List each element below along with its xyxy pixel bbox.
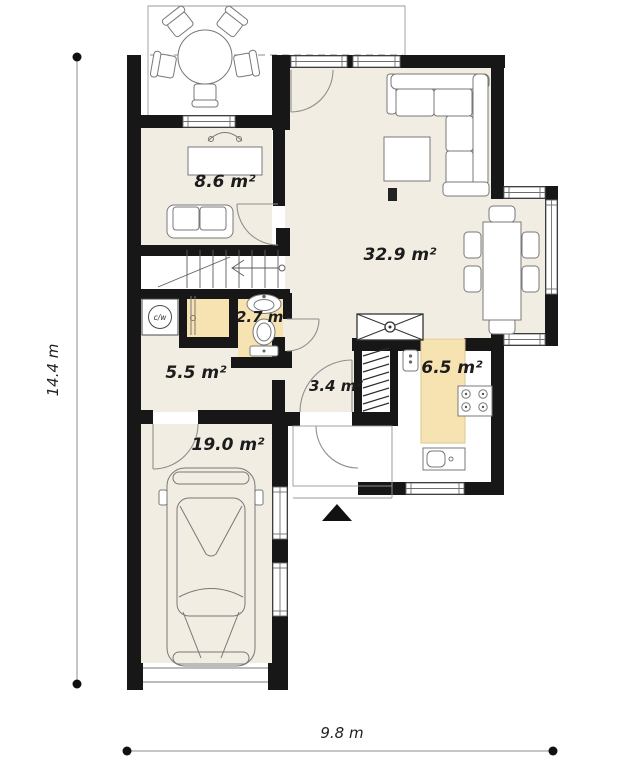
dimension-vertical: 14.4 m [44, 53, 82, 689]
room-label-garage: 19.0 m² [191, 435, 265, 455]
floor-plan-canvas: c/w [0, 0, 625, 760]
wardrobe-floor [187, 293, 229, 337]
garage-gate [143, 668, 268, 682]
dimension-label-horizontal: 9.8 m [320, 724, 363, 742]
dining-chair [489, 206, 515, 222]
wall-pantry-right [390, 346, 398, 416]
window-garage-2 [273, 563, 287, 616]
wall-exterior-right-upper [491, 55, 504, 199]
wall-wardrobe-left [179, 293, 187, 339]
room-label-hall: 5.5 m² [165, 363, 227, 383]
car-mirror [255, 490, 263, 505]
window-living-top-2 [353, 56, 400, 67]
dining-table [483, 222, 521, 320]
wall-wardrobe-bottom [179, 337, 238, 348]
dining-chair [522, 232, 539, 258]
door-front-outer [316, 426, 358, 468]
wall-study-bottom [127, 245, 290, 256]
boiler-label: c/w [154, 313, 168, 322]
stove [458, 386, 492, 416]
floor-plan-drawing: c/w [0, 0, 625, 760]
dining-chair [464, 232, 481, 258]
room-label-bathroom: 2.7 m² [236, 308, 290, 326]
terrace-round-table [178, 30, 232, 84]
wall-terrace-living [272, 66, 290, 130]
car-mirror [159, 490, 167, 505]
kitchen-sink [423, 448, 465, 470]
wall-bath-bottom [231, 357, 288, 368]
entrance-arrow [322, 504, 352, 521]
window-bay-bottom [504, 334, 545, 345]
window-kitchen [406, 483, 464, 494]
wall-garage-bottom-right [268, 663, 288, 690]
wall-hall-garage-right [198, 410, 285, 424]
dining-chair [522, 266, 539, 292]
window-garage-1 [273, 487, 287, 539]
wall-living-kitchen-right [464, 338, 500, 351]
room-label-kitchen: 6.5 m² [421, 358, 483, 378]
coffee-table [384, 137, 430, 181]
window-living-top-1 [291, 56, 347, 67]
room-label-corridor: 3.4 m² [309, 377, 363, 395]
ventilation-block [357, 314, 423, 340]
dimension-label-vertical: 14.4 m [44, 344, 62, 397]
dining-chair [464, 266, 481, 292]
wall-garage-bottom-left [127, 663, 143, 690]
room-label-study: 8.6 m² [194, 172, 256, 192]
dimension-horizontal: 9.8 m [123, 724, 558, 756]
window-study [183, 116, 235, 127]
boiler: c/w [142, 299, 178, 335]
wall-hall-garage-left [141, 410, 153, 424]
radiator-icon [403, 350, 418, 371]
wall-study-right [273, 130, 285, 206]
terrace-chair [233, 50, 260, 80]
window-bay-top [504, 187, 545, 198]
terrace-chair [192, 84, 218, 107]
room-label-living: 32.9 m² [363, 245, 437, 265]
wall-kitchen-right [491, 346, 504, 495]
study-sofa [167, 205, 233, 238]
tv-mark [388, 188, 397, 201]
wall-hall-corridor-lower [272, 380, 285, 412]
room-floor-corridor [285, 338, 354, 412]
room-floor-garage [141, 424, 272, 663]
wall-exterior-left [127, 55, 141, 690]
stairwell-floor [141, 256, 290, 289]
window-bay-right [546, 200, 557, 294]
terrace-chair [150, 51, 177, 81]
